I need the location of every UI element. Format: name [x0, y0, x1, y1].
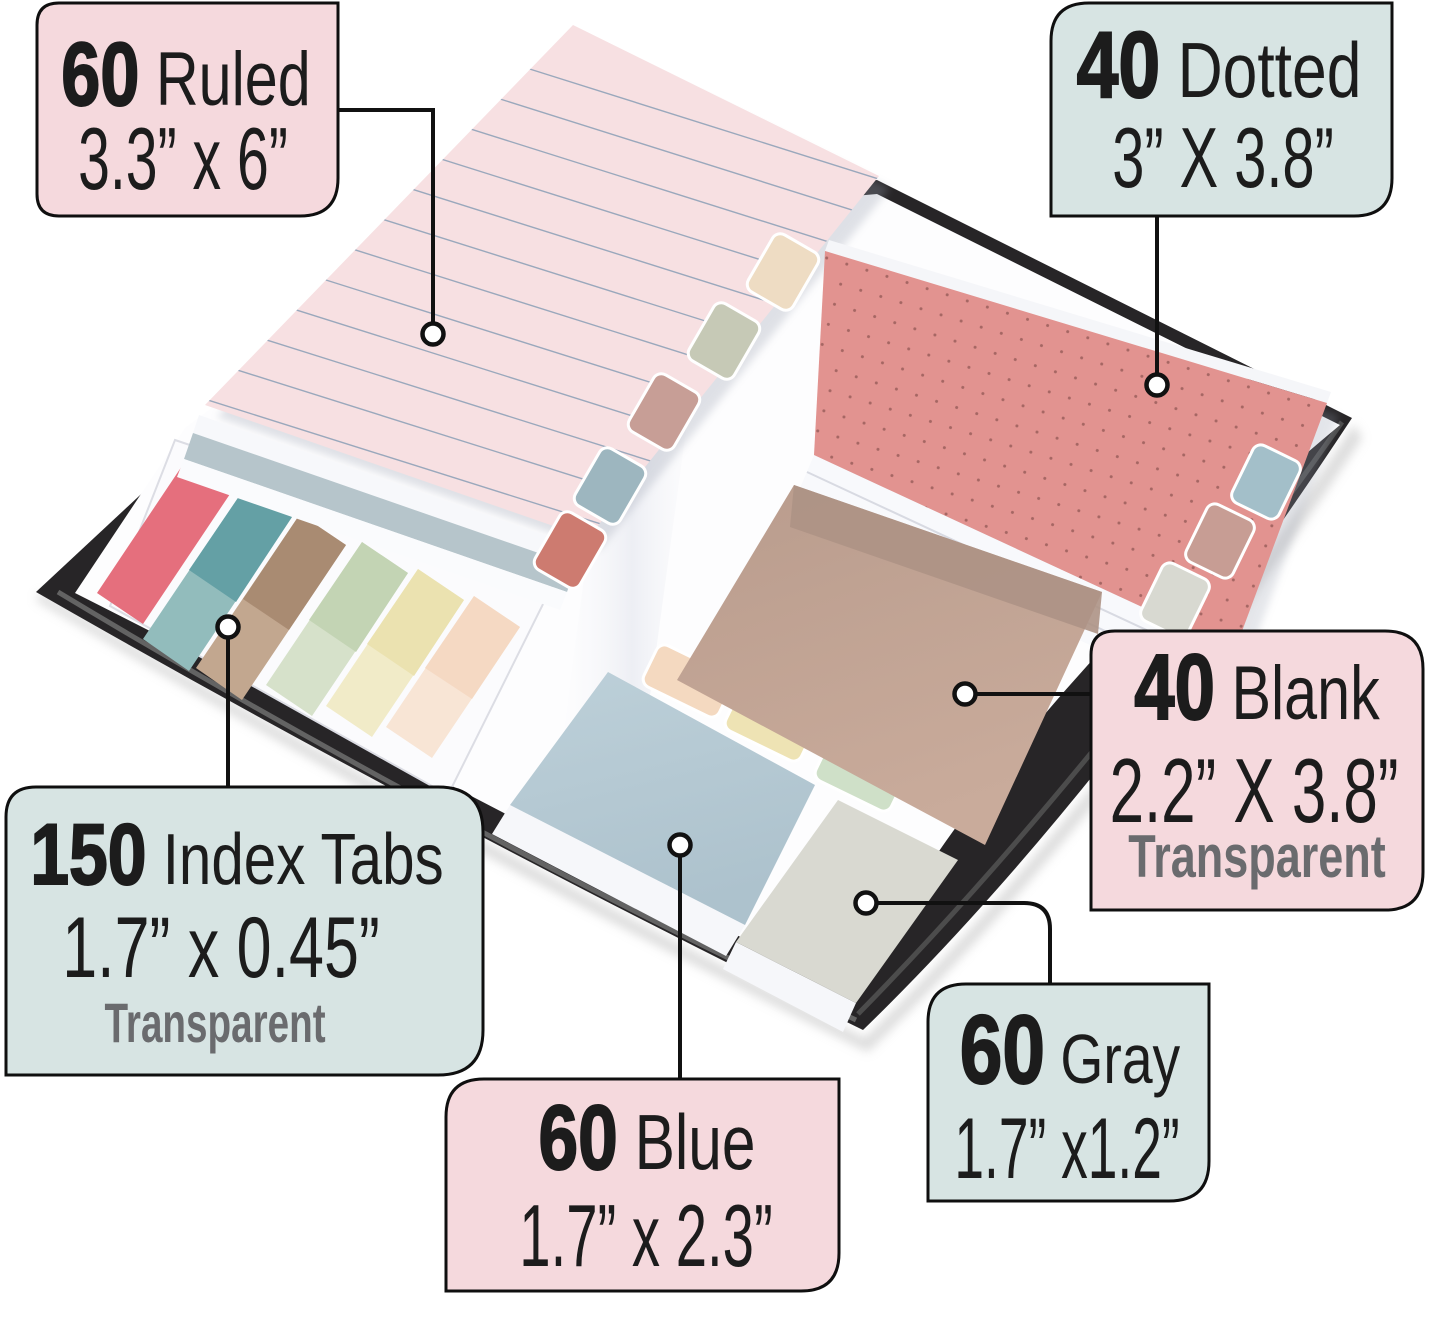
svg-text:1.7” x1.2”: 1.7” x1.2” [954, 1101, 1179, 1197]
svg-text:1.7” x 0.45”: 1.7” x 0.45” [62, 899, 380, 995]
svg-text:150 Index Tabs: 150 Index Tabs [30, 806, 443, 903]
svg-text:40 Dotted: 40 Dotted [1077, 13, 1362, 118]
svg-text:3.3” x 6”: 3.3” x 6” [78, 110, 288, 208]
svg-text:60 Blue: 60 Blue [538, 1086, 755, 1189]
svg-text:40 Blank: 40 Blank [1134, 635, 1380, 739]
svg-text:Transparent: Transparent [104, 992, 325, 1055]
svg-text:3” X 3.8”: 3” X 3.8” [1112, 111, 1334, 206]
svg-text:1.7” x 2.3”: 1.7” x 2.3” [519, 1186, 772, 1285]
svg-text:Transparent: Transparent [1128, 824, 1386, 891]
